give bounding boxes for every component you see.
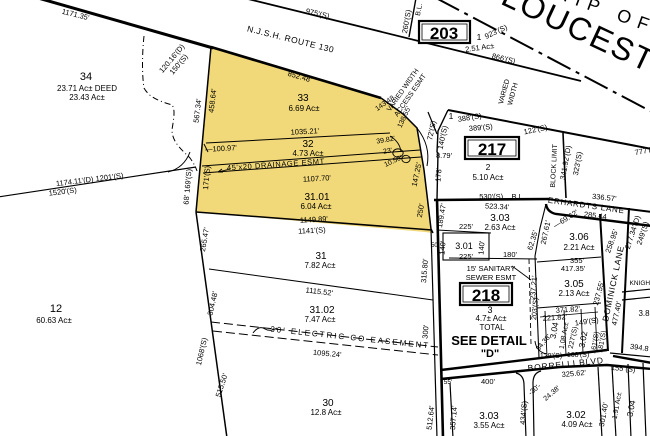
svg-text:5.10 Ac±: 5.10 Ac± — [472, 173, 504, 182]
svg-text:2.13 Ac±: 2.13 Ac± — [558, 289, 590, 298]
svg-text:1: 1 — [449, 111, 454, 121]
svg-text:221.82': 221.82' — [542, 312, 568, 323]
svg-text:300': 300' — [420, 324, 430, 339]
svg-text:1: 1 — [477, 32, 482, 42]
svg-text:TOTAL: TOTAL — [479, 323, 505, 332]
svg-text:7.47 Ac±: 7.47 Ac± — [304, 315, 336, 324]
svg-text:33: 33 — [297, 93, 309, 104]
svg-text:KNIGHT CT: KNIGHT CT — [630, 280, 650, 287]
svg-text:6.04 Ac±: 6.04 Ac± — [300, 202, 332, 211]
svg-text:2.63 Ac±: 2.63 Ac± — [484, 223, 516, 232]
svg-text:—100.97': —100.97' — [205, 143, 238, 154]
svg-text:3.8: 3.8 — [638, 309, 650, 318]
svg-text:400': 400' — [481, 377, 496, 386]
svg-text:34: 34 — [80, 71, 92, 83]
svg-text:23.71 Ac± DEED: 23.71 Ac± DEED — [57, 84, 117, 93]
svg-text:4.7± Ac±: 4.7± Ac± — [475, 314, 507, 323]
svg-text:3.55 Ac±: 3.55 Ac± — [473, 421, 505, 430]
svg-text:217: 217 — [478, 140, 506, 159]
svg-text:1149.89': 1149.89' — [300, 214, 329, 224]
svg-text:SEWER ESMT: SEWER ESMT — [466, 273, 517, 282]
svg-text:"D": "D" — [481, 348, 499, 360]
svg-text:12.8 Ac±: 12.8 Ac± — [310, 408, 342, 417]
svg-text:1035.21': 1035.21' — [290, 126, 320, 137]
svg-text:3.01: 3.01 — [455, 241, 473, 251]
svg-text:140': 140' — [437, 240, 447, 255]
svg-text:225': 225' — [459, 252, 474, 261]
svg-text:60.63 Ac±: 60.63 Ac± — [36, 316, 72, 325]
svg-text:2: 2 — [486, 162, 491, 172]
svg-text:55': 55' — [444, 379, 452, 386]
svg-text:180': 180' — [503, 250, 518, 259]
svg-text:23.43 Ac±: 23.43 Ac± — [69, 93, 105, 102]
svg-text:225': 225' — [459, 222, 474, 231]
svg-text:7.82 Ac±: 7.82 Ac± — [304, 261, 336, 270]
svg-text:1141'(S): 1141'(S) — [298, 225, 326, 235]
svg-text:523.34': 523.34' — [485, 201, 510, 211]
svg-text:178': 178' — [433, 167, 443, 182]
svg-text:SEE DETAIL: SEE DETAIL — [451, 333, 527, 348]
svg-text:140': 140' — [476, 240, 486, 255]
svg-text:2.21 Ac±: 2.21 Ac± — [563, 243, 595, 252]
svg-text:417.35': 417.35' — [561, 264, 586, 273]
svg-text:218: 218 — [472, 286, 500, 305]
svg-text:1107.70': 1107.70' — [303, 173, 332, 183]
svg-text:530'(S) B.L.: 530'(S) B.L. — [479, 192, 525, 201]
svg-text:15' SANITARY: 15' SANITARY — [467, 264, 516, 273]
svg-text:203: 203 — [430, 24, 458, 43]
svg-text:4.09 Ac±: 4.09 Ac± — [561, 420, 593, 429]
svg-text:12: 12 — [50, 303, 62, 315]
svg-text:3.06: 3.06 — [569, 232, 589, 243]
svg-text:8.79': 8.79' — [436, 151, 453, 160]
svg-text:6.69 Ac±: 6.69 Ac± — [288, 104, 320, 113]
